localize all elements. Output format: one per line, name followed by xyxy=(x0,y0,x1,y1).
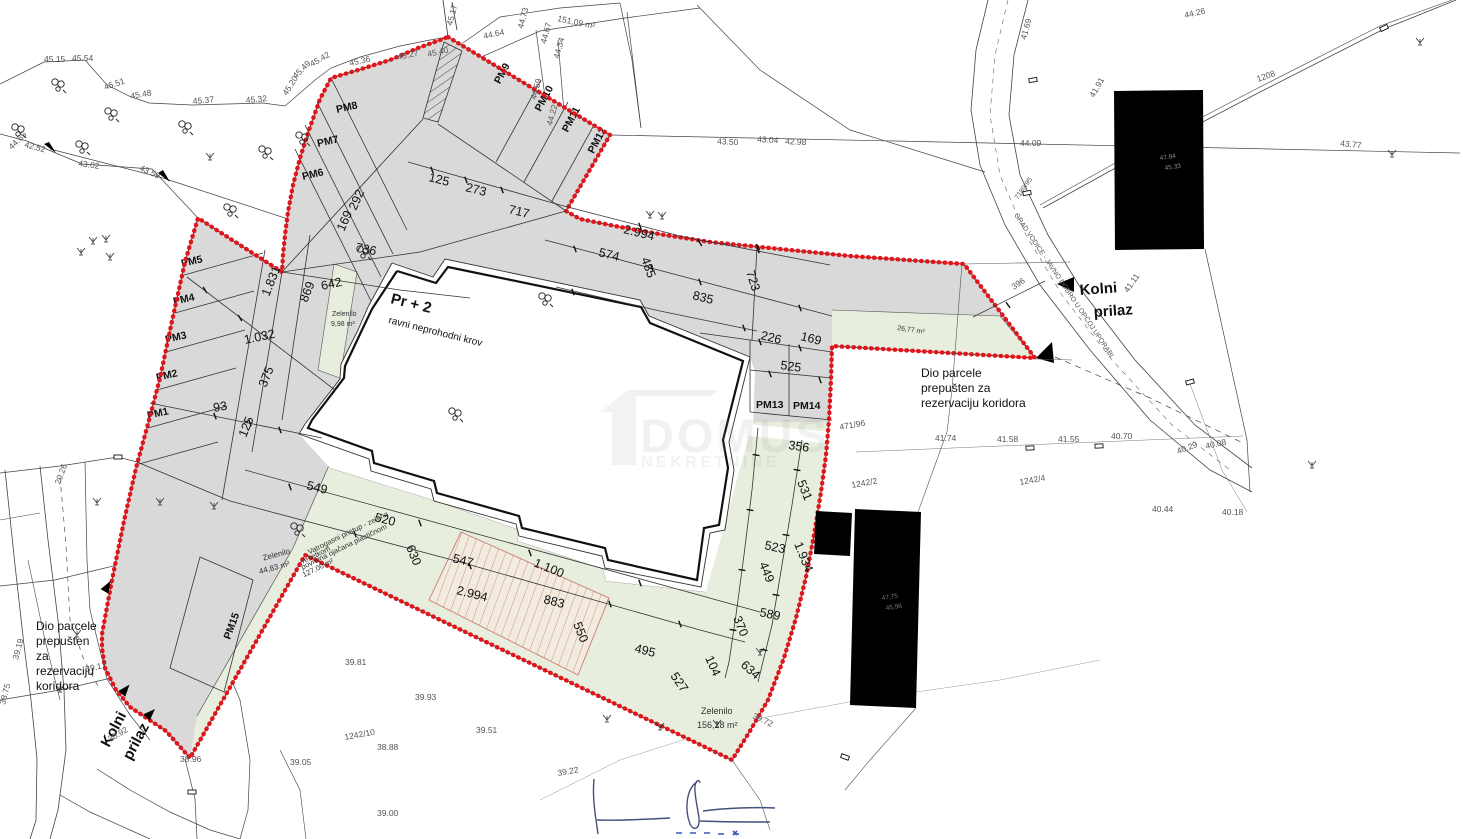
svg-text:39.05: 39.05 xyxy=(290,757,312,767)
svg-text:45.37: 45.37 xyxy=(192,94,214,106)
svg-text:9,98 m²: 9,98 m² xyxy=(331,321,355,328)
svg-text:41.74: 41.74 xyxy=(935,433,957,443)
svg-text:za: za xyxy=(36,649,49,663)
svg-text:93: 93 xyxy=(212,399,228,415)
svg-text:39.00: 39.00 xyxy=(377,808,399,818)
svg-text:NEKRETNINE: NEKRETNINE xyxy=(641,454,780,471)
svg-text:prepušten za: prepušten za xyxy=(921,381,991,395)
svg-text:45.15: 45.15 xyxy=(44,54,66,64)
svg-text:41.58: 41.58 xyxy=(997,434,1019,444)
svg-text:prepušten: prepušten xyxy=(36,634,89,648)
svg-text:38.88: 38.88 xyxy=(377,742,399,752)
svg-text:43.04: 43.04 xyxy=(757,134,779,145)
svg-text:Kolni: Kolni xyxy=(1079,279,1118,299)
svg-text:43.50: 43.50 xyxy=(717,136,739,147)
svg-text:Dio parcele: Dio parcele xyxy=(36,619,97,633)
svg-text:40.18: 40.18 xyxy=(1222,507,1244,517)
svg-text:39.93: 39.93 xyxy=(415,692,437,702)
svg-text:44.09: 44.09 xyxy=(1020,138,1042,148)
svg-text:42.98: 42.98 xyxy=(785,136,807,147)
svg-text:356: 356 xyxy=(788,438,811,455)
svg-text:45.54: 45.54 xyxy=(72,53,94,63)
svg-text:Zelenilo: Zelenilo xyxy=(332,311,357,318)
svg-text:41.55: 41.55 xyxy=(1058,434,1080,444)
svg-text:rezervaciju koridora: rezervaciju koridora xyxy=(921,396,1026,410)
svg-text:koridora: koridora xyxy=(36,679,80,693)
svg-text:38.96: 38.96 xyxy=(180,754,202,764)
svg-text:39.51: 39.51 xyxy=(476,725,498,735)
svg-text:Zelenilo: Zelenilo xyxy=(701,706,733,716)
svg-text:prilaz: prilaz xyxy=(1093,301,1133,321)
svg-text:39.81: 39.81 xyxy=(345,657,367,667)
svg-text:45.32: 45.32 xyxy=(245,93,267,105)
svg-text:40.70: 40.70 xyxy=(1111,431,1133,441)
svg-text:40.44: 40.44 xyxy=(1152,504,1174,514)
svg-text:525: 525 xyxy=(780,358,803,375)
svg-text:Dio parcele: Dio parcele xyxy=(921,366,982,380)
